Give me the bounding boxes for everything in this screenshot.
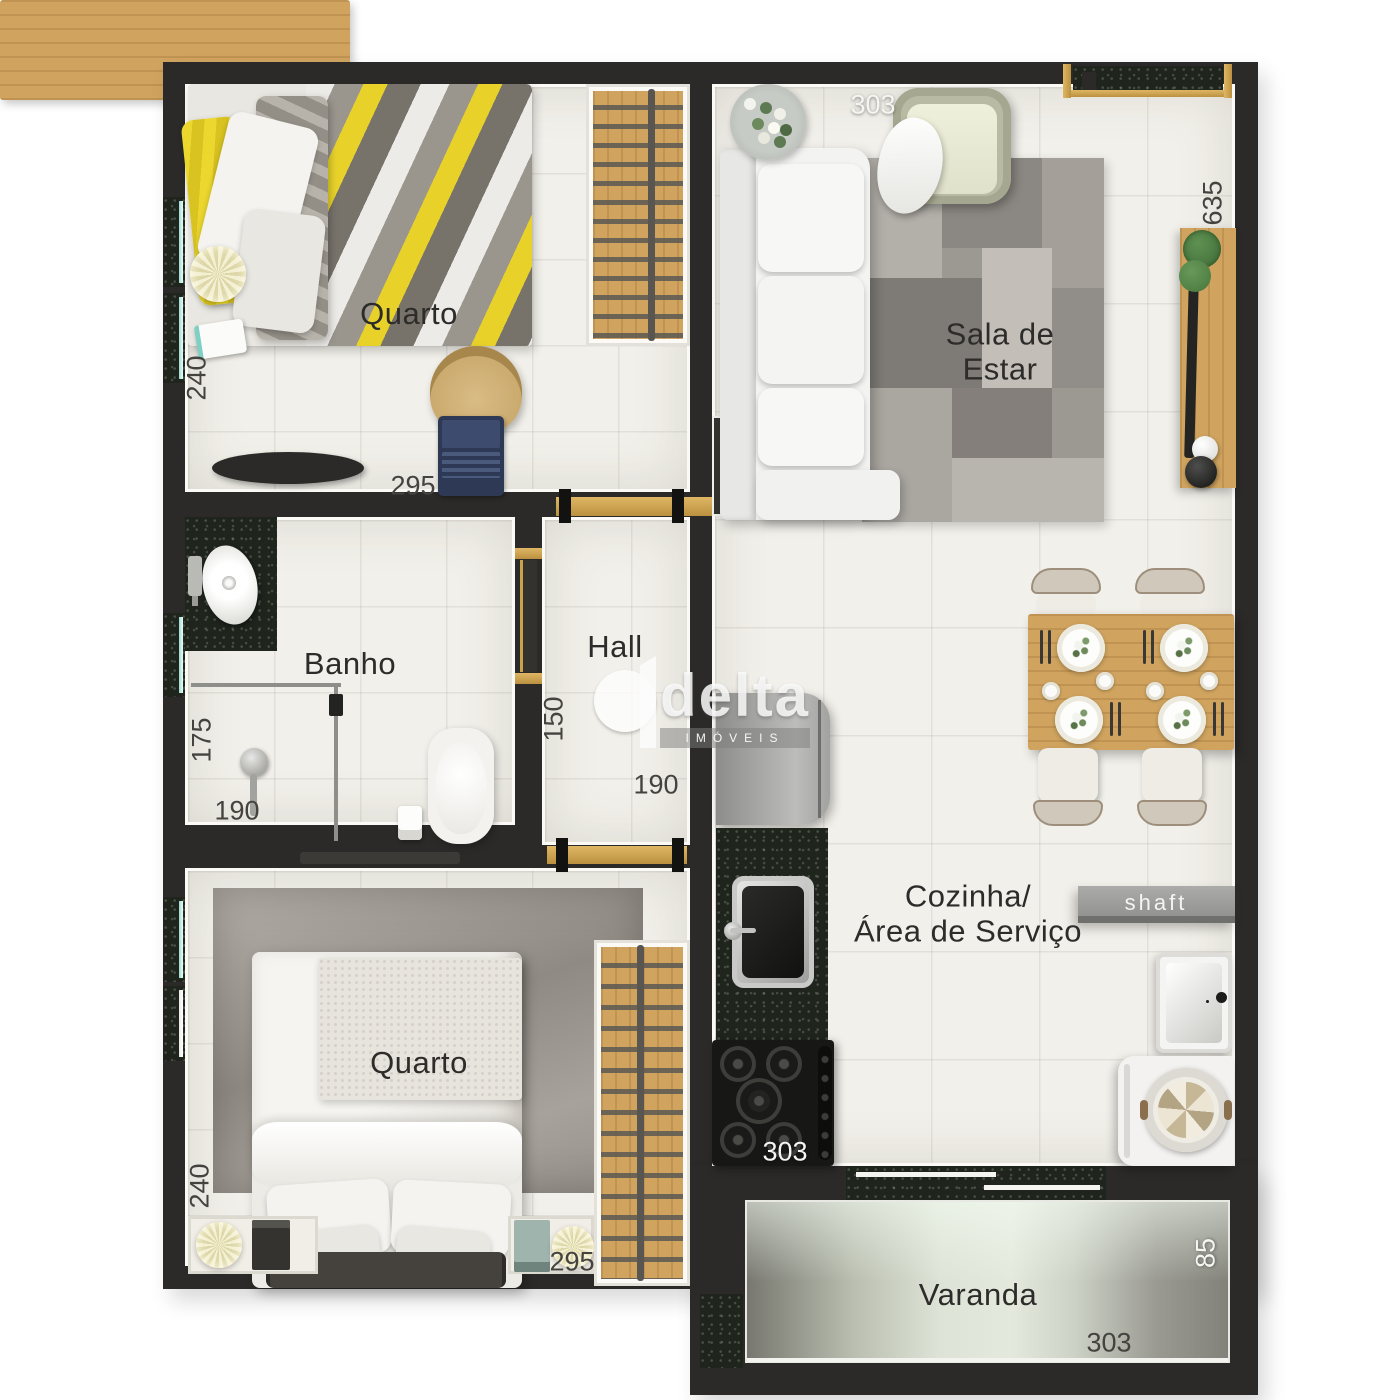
shower-head <box>240 748 268 776</box>
laundry-tub-faucet <box>1216 992 1227 1003</box>
bathroom-door-jamb-bottom <box>515 673 542 684</box>
dining-chairback-top-2 <box>1135 568 1205 594</box>
dim-bed1-left: 240 <box>182 355 213 400</box>
bathroom-door-leaf <box>520 560 537 672</box>
bedroom2-door-stop-left <box>556 838 568 872</box>
bedroom1-door-stop-left <box>559 489 571 523</box>
watermark-logo-bar <box>640 656 656 748</box>
living-sofa-cushion-1 <box>758 164 864 272</box>
toilet-paper-holder <box>398 806 422 840</box>
living-window-stop <box>1082 72 1096 90</box>
dining-plate-2 <box>1160 624 1208 672</box>
plate-garnish <box>1067 706 1091 734</box>
plate-garnish <box>1172 634 1196 662</box>
dining-cup-3 <box>1146 682 1164 700</box>
dining-cup-1 <box>1042 682 1060 700</box>
bedroom1-laptop-keyboard <box>442 452 500 478</box>
bathroom-sink-drain <box>222 576 236 590</box>
stove-burner-1 <box>720 1046 756 1082</box>
dim-balcony-right: 85 <box>1191 1238 1222 1268</box>
bedroom2-label: Quarto <box>370 1045 468 1081</box>
living-flower-blooms <box>744 98 756 110</box>
kitchen-faucet-spout <box>730 928 756 933</box>
kitchen-label-line1: Cozinha/ <box>854 879 1082 914</box>
stove-burner-3 <box>720 1122 756 1158</box>
watermark: delta IMÓVEIS <box>594 652 824 752</box>
dining-cutlery-2 <box>1048 630 1051 664</box>
bedroom2-door-sill <box>547 846 687 864</box>
balcony-sliding-panel-2 <box>984 1185 1100 1190</box>
stove-burner-2 <box>766 1046 802 1082</box>
bedroom2-wardrobe-rail <box>637 945 644 1281</box>
dining-cup-4 <box>1200 672 1218 690</box>
stove-burner-center <box>736 1078 782 1124</box>
dining-chairback-top-1 <box>1031 568 1101 594</box>
plate-garnish <box>1069 634 1093 662</box>
bathroom-door-jamb-top <box>515 548 542 559</box>
dining-cutlery-1 <box>1040 630 1043 664</box>
entrance-door-sill <box>690 497 712 516</box>
bedroom1-door-sill <box>556 497 690 516</box>
watermark-tagline: IMÓVEIS <box>685 731 784 745</box>
living-rug-patch-8 <box>952 458 1104 522</box>
dining-plate-1 <box>1057 624 1105 672</box>
living-window-frame <box>1070 90 1226 97</box>
dining-cutlery-8 <box>1221 702 1224 736</box>
bathroom-label: Banho <box>304 646 396 682</box>
bedroom2-book-right <box>514 1220 550 1272</box>
dim-bed2-left: 240 <box>185 1163 216 1208</box>
dim-living-right: 635 <box>1198 180 1229 225</box>
dining-chairback-bottom-2 <box>1137 800 1207 826</box>
bathroom-faucet <box>188 556 202 596</box>
bedroom2-sheet-fold <box>252 1122 522 1186</box>
bedroom1-wardrobe-interior <box>593 91 683 339</box>
tv-decor-black-sphere <box>1185 456 1217 488</box>
bedroom2-window-glass-2 <box>179 990 183 1057</box>
balcony-light-overlay <box>747 1202 1228 1282</box>
bedroom1-desk-tray <box>212 452 364 484</box>
balcony-left-planter <box>700 1294 743 1368</box>
bedroom1-lamp <box>190 246 246 302</box>
bedroom2-lamp-left <box>196 1222 242 1268</box>
stove-knob-strip <box>818 1046 832 1160</box>
living-sofa-backrest <box>720 148 756 520</box>
dim-kitchen-bottom: 303 <box>762 1137 807 1168</box>
dining-cup-2 <box>1096 672 1114 690</box>
floorplan: shaft Quarto Banho Hall Sala de Estar Co… <box>0 0 1400 1400</box>
dining-cutlery-3 <box>1143 630 1146 664</box>
shaft-label: shaft <box>1125 890 1188 916</box>
plate-garnish <box>1170 706 1194 734</box>
watermark-tagline-bar: IMÓVEIS <box>660 728 810 748</box>
living-window-jamb-right <box>1224 64 1232 98</box>
living-rug-patch-9 <box>1052 288 1104 388</box>
dining-cutlery-7 <box>1213 702 1216 736</box>
dining-cutlery-4 <box>1151 630 1154 664</box>
dining-plate-3 <box>1055 696 1103 744</box>
basket-handle-left <box>1140 1100 1148 1120</box>
dim-bath-bottom: 190 <box>214 796 259 827</box>
shaft-shelf-edge <box>1078 916 1235 923</box>
dim-bath-left: 175 <box>187 717 218 762</box>
bedroom2-door-stop-right <box>672 838 684 872</box>
dining-plate-4 <box>1158 696 1206 744</box>
dining-cutlery-5 <box>1110 702 1113 736</box>
bedroom1-window-glass-1 <box>179 201 183 283</box>
living-sofa-chaise <box>756 470 900 520</box>
dining-chair-bottom-1 <box>1038 748 1098 802</box>
living-label-line2: Estar <box>946 352 1055 387</box>
dim-hall-left: 150 <box>539 696 570 741</box>
basket-handle-right <box>1224 1100 1232 1120</box>
balcony-sliding-panel-1 <box>856 1172 996 1177</box>
bedroom1-laptop-screen <box>442 420 500 448</box>
living-flower-plate <box>730 84 806 160</box>
bedroom2-wall-tv <box>300 852 460 864</box>
laundry-tub-basin <box>1166 963 1222 1043</box>
dining-chairback-bottom-1 <box>1033 800 1103 826</box>
bathroom-window-glass <box>179 617 183 693</box>
bedroom1-label: Quarto <box>360 296 458 332</box>
dining-cutlery-6 <box>1118 702 1121 736</box>
kitchen-label-line2: Área de Serviço <box>854 914 1082 949</box>
toilet-lid <box>435 742 487 834</box>
dim-hall-bottom: 190 <box>633 770 678 801</box>
balcony-label: Varanda <box>919 1277 1037 1313</box>
dim-living-top: 303 <box>850 90 895 121</box>
living-window-jamb-left <box>1063 64 1071 98</box>
bedroom1-wardrobe-rail <box>648 89 655 341</box>
bedroom2-book-left <box>252 1220 290 1270</box>
shower-glass-horizontal <box>191 683 341 687</box>
living-label: Sala de Estar <box>946 317 1055 386</box>
balcony-floor-edge-line <box>747 1358 1228 1362</box>
living-sofa-cushion-3 <box>758 388 864 466</box>
bedroom2-window-glass-1 <box>179 901 183 978</box>
dining-chair-bottom-2 <box>1142 748 1202 802</box>
washing-machine-towels <box>1158 1082 1214 1138</box>
dim-bed2-bottom: 295 <box>549 1247 594 1278</box>
watermark-brand: delta <box>660 666 810 726</box>
dim-bed1-bottom: 295 <box>390 471 435 502</box>
tv-topiary-2 <box>1179 260 1211 292</box>
shower-glass-clip <box>329 694 343 716</box>
washing-machine-panel <box>1124 1064 1130 1158</box>
living-label-line1: Sala de <box>946 317 1055 352</box>
dim-balcony-bottom: 303 <box>1086 1328 1131 1359</box>
living-rug-patch-7 <box>952 388 1052 458</box>
kitchen-label: Cozinha/ Área de Serviço <box>854 879 1082 948</box>
bedroom1-door-stop-right <box>672 489 684 523</box>
living-sofa-cushion-2 <box>758 276 864 384</box>
